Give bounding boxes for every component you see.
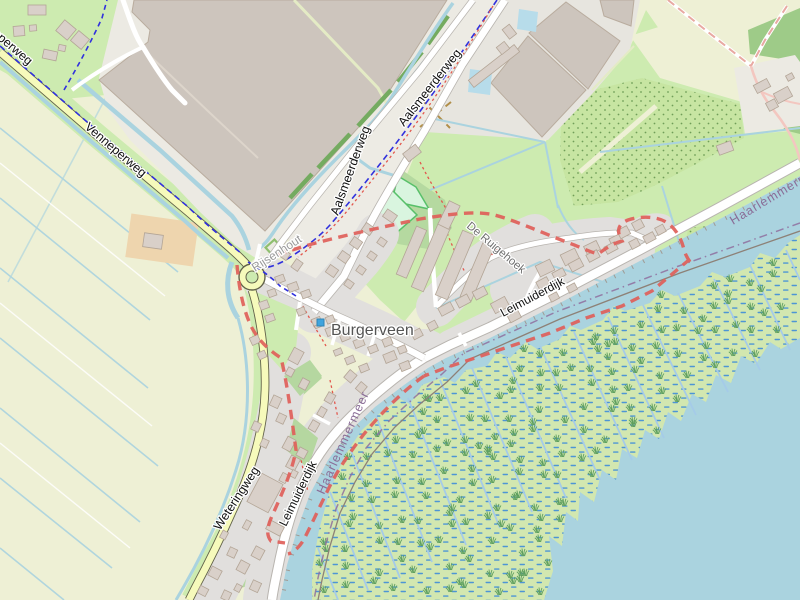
svg-text:Burgerveen: Burgerveen — [331, 322, 414, 339]
